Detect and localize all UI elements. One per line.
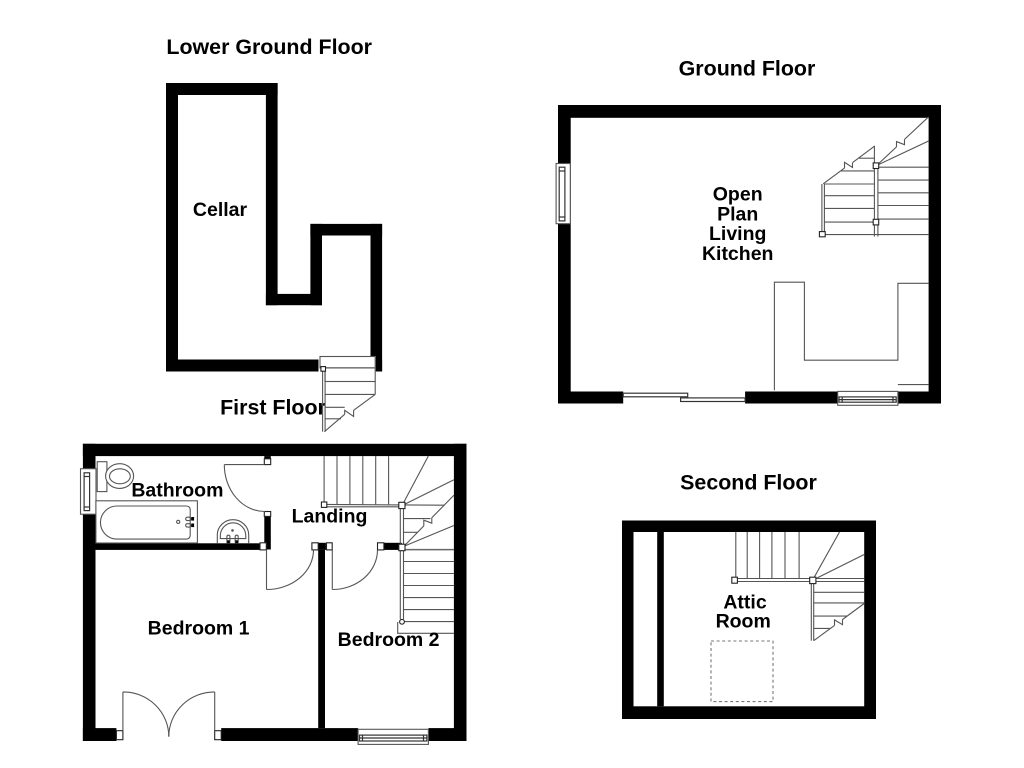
svg-text:Lower Ground Floor: Lower Ground Floor [166,35,372,59]
svg-text:Bedroom 1: Bedroom 1 [148,618,250,640]
svg-text:Ground Floor: Ground Floor [679,57,816,81]
svg-text:Second Floor: Second Floor [680,470,817,494]
svg-text:Cellar: Cellar [193,199,248,221]
svg-text:Living: Living [709,223,766,245]
svg-text:Room: Room [716,611,771,633]
svg-text:Plan: Plan [717,203,758,225]
svg-text:Open: Open [713,184,763,206]
svg-text:Bathroom: Bathroom [131,480,223,502]
svg-text:Kitchen: Kitchen [702,243,774,265]
svg-text:Landing: Landing [292,505,368,527]
svg-text:Bedroom 2: Bedroom 2 [338,629,440,651]
svg-text:First Floor: First Floor [220,396,326,420]
